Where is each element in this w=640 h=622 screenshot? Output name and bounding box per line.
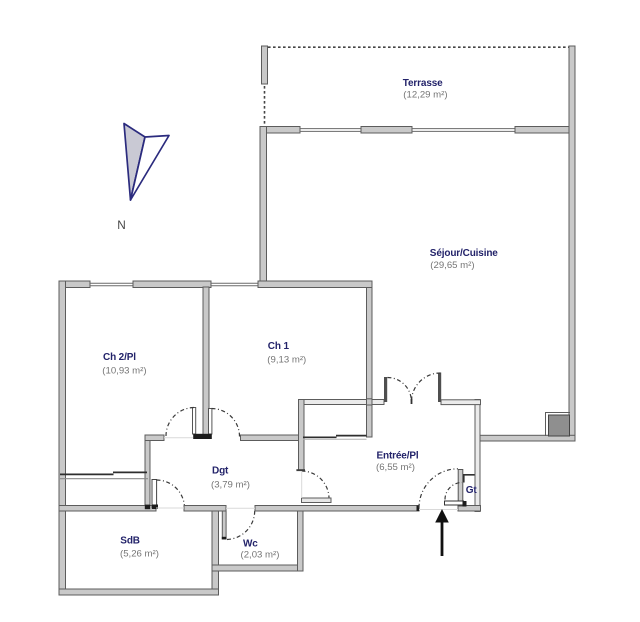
svg-text:Ch 2/Pl: Ch 2/Pl: [103, 352, 136, 363]
svg-text:Séjour/Cuisine: Séjour/Cuisine: [430, 248, 499, 259]
svg-text:(3,79 m²): (3,79 m²): [211, 480, 250, 491]
svg-text:SdB: SdB: [120, 536, 140, 547]
svg-text:(5,26 m²): (5,26 m²): [120, 548, 159, 559]
svg-text:(12,29 m²): (12,29 m²): [403, 90, 447, 101]
svg-text:(9,13 m²): (9,13 m²): [267, 354, 306, 365]
svg-text:Wc: Wc: [243, 538, 258, 549]
svg-text:(29,65 m²): (29,65 m²): [430, 260, 474, 271]
svg-text:(6,55 m²): (6,55 m²): [376, 462, 415, 473]
svg-text:Entrée/Pl: Entrée/Pl: [377, 451, 419, 462]
svg-text:(2,03 m²): (2,03 m²): [241, 550, 280, 561]
svg-text:Ch 1: Ch 1: [268, 341, 290, 352]
svg-text:Gt: Gt: [466, 485, 478, 496]
svg-text:(10,93 m²): (10,93 m²): [102, 365, 146, 376]
svg-text:N: N: [117, 218, 126, 232]
svg-text:Terrasse: Terrasse: [403, 78, 443, 89]
svg-text:Dgt: Dgt: [212, 466, 229, 477]
